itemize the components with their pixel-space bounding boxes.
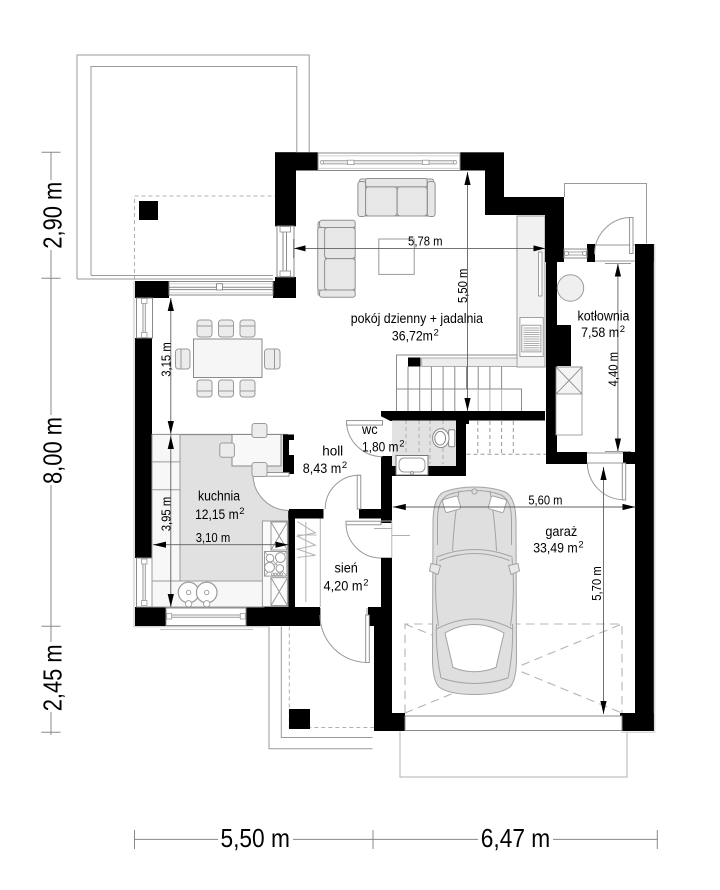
- svg-text:8,43 m: 8,43 m: [303, 461, 342, 477]
- svg-text:5,50 m: 5,50 m: [455, 269, 470, 304]
- svg-text:12,15 m: 12,15 m: [195, 507, 239, 523]
- svg-text:7,58 m: 7,58 m: [581, 325, 619, 341]
- svg-text:33,49 m: 33,49 m: [533, 541, 578, 557]
- svg-text:sień: sień: [335, 560, 358, 576]
- svg-text:2: 2: [399, 439, 404, 450]
- svg-text:4,20 m: 4,20 m: [324, 579, 363, 595]
- svg-text:pokój dzienny + jadalnia: pokój dzienny + jadalnia: [351, 311, 483, 327]
- svg-text:garaż: garaż: [545, 524, 577, 540]
- svg-text:5,60 m: 5,60 m: [528, 493, 562, 508]
- svg-text:2,90 m: 2,90 m: [37, 182, 67, 249]
- svg-text:5,50 m: 5,50 m: [220, 823, 290, 853]
- svg-text:4,40 m: 4,40 m: [605, 352, 620, 387]
- svg-text:5,70 m: 5,70 m: [589, 566, 604, 601]
- svg-text:2: 2: [342, 460, 347, 471]
- svg-text:36,72m: 36,72m: [392, 329, 433, 345]
- svg-text:2: 2: [578, 540, 583, 551]
- svg-text:3,15 m: 3,15 m: [159, 342, 174, 377]
- svg-text:kotłownia: kotłownia: [578, 308, 630, 324]
- svg-text:3,95 m: 3,95 m: [159, 497, 174, 532]
- svg-text:3,10 m: 3,10 m: [196, 530, 231, 545]
- svg-text:2,45 m: 2,45 m: [37, 644, 67, 711]
- svg-text:5,78 m: 5,78 m: [408, 233, 443, 248]
- svg-text:6,47 m: 6,47 m: [481, 823, 551, 853]
- svg-text:wc: wc: [361, 422, 377, 438]
- svg-text:8,00 m: 8,00 m: [37, 417, 67, 484]
- svg-text:holl: holl: [322, 444, 343, 460]
- svg-text:2: 2: [620, 324, 625, 335]
- svg-text:1,80 m: 1,80 m: [362, 440, 399, 456]
- svg-text:kuchnia: kuchnia: [198, 488, 240, 504]
- svg-text:2: 2: [363, 578, 368, 589]
- svg-text:2: 2: [434, 328, 439, 339]
- svg-text:2: 2: [239, 506, 244, 517]
